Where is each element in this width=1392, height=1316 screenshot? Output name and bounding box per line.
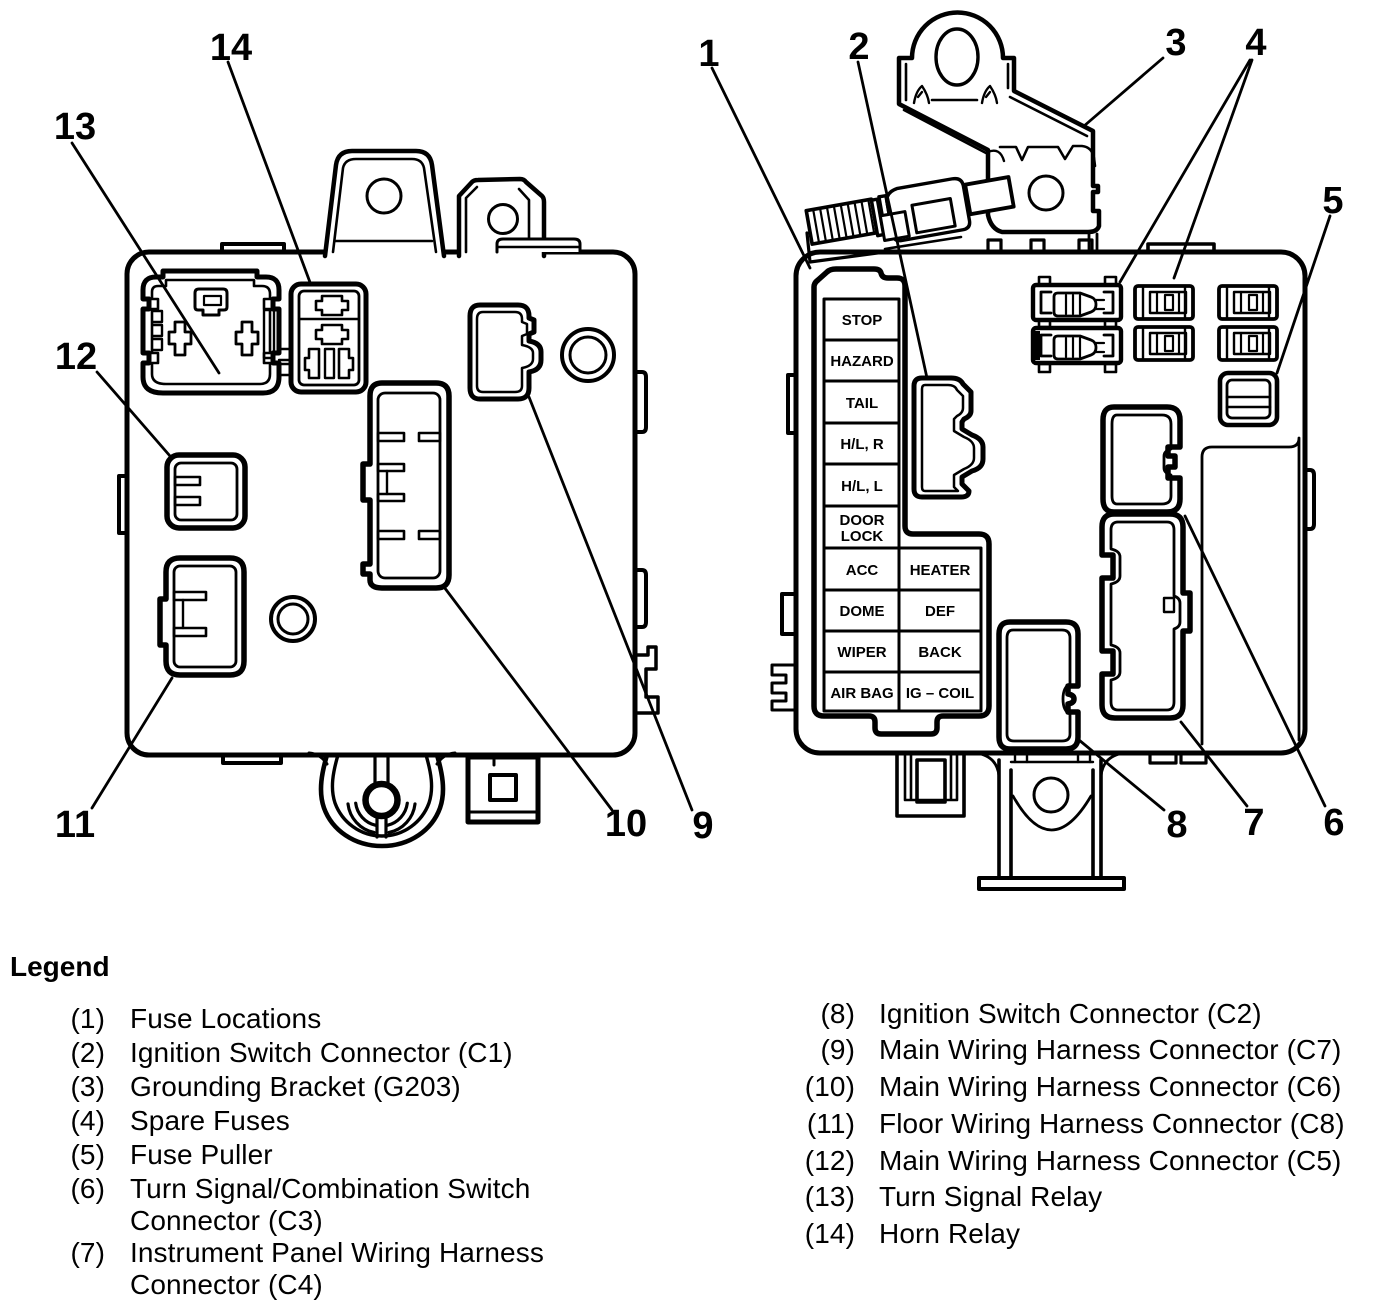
svg-text:(7): (7) xyxy=(70,1237,105,1268)
svg-text:10: 10 xyxy=(605,803,647,845)
svg-text:WIPER: WIPER xyxy=(837,644,886,661)
svg-text:LOCK: LOCK xyxy=(841,528,884,545)
svg-text:13: 13 xyxy=(54,106,96,148)
svg-text:(8): (8) xyxy=(820,998,855,1029)
svg-text:Spare Fuses: Spare Fuses xyxy=(130,1105,290,1136)
svg-text:H/L, R: H/L, R xyxy=(840,436,883,453)
svg-text:DOME: DOME xyxy=(840,603,885,620)
svg-text:DEF: DEF xyxy=(925,603,955,620)
svg-text:Main Wiring Harness Connector: Main Wiring Harness Connector (C7) xyxy=(879,1034,1341,1065)
svg-text:HEATER: HEATER xyxy=(910,562,971,579)
svg-text:(6): (6) xyxy=(70,1173,105,1204)
svg-text:IG – COIL: IG – COIL xyxy=(906,685,974,702)
svg-text:(12): (12) xyxy=(805,1145,855,1176)
svg-text:8: 8 xyxy=(1166,804,1187,846)
svg-text:9: 9 xyxy=(692,805,713,847)
svg-text:Instrument Panel Wiring Harnes: Instrument Panel Wiring Harness xyxy=(130,1237,544,1268)
svg-text:Turn Signal/Combination Switch: Turn Signal/Combination Switch xyxy=(130,1173,530,1204)
svg-text:Connector (C3): Connector (C3) xyxy=(130,1205,323,1236)
svg-text:14: 14 xyxy=(210,27,252,69)
svg-text:Main Wiring Harness Connector: Main Wiring Harness Connector (C6) xyxy=(879,1071,1341,1102)
svg-text:(5): (5) xyxy=(70,1139,105,1170)
svg-text:STOP: STOP xyxy=(842,312,883,329)
svg-text:BACK: BACK xyxy=(918,644,961,661)
svg-text:Grounding Bracket (G203): Grounding Bracket (G203) xyxy=(130,1071,461,1102)
svg-text:Fuse Locations: Fuse Locations xyxy=(130,1003,321,1034)
svg-text:Legend: Legend xyxy=(10,951,110,982)
svg-text:Ignition Switch Connector (C1): Ignition Switch Connector (C1) xyxy=(130,1037,513,1068)
svg-text:1: 1 xyxy=(698,33,719,75)
svg-text:TAIL: TAIL xyxy=(846,395,878,412)
svg-text:Connector (C4): Connector (C4) xyxy=(130,1269,323,1300)
svg-text:AIR BAG: AIR BAG xyxy=(830,685,893,702)
svg-text:6: 6 xyxy=(1323,802,1344,844)
svg-text:(14): (14) xyxy=(805,1218,855,1249)
svg-text:4: 4 xyxy=(1245,22,1266,64)
svg-text:(9): (9) xyxy=(820,1034,855,1065)
svg-text:Horn Relay: Horn Relay xyxy=(879,1218,1020,1249)
svg-text:(1): (1) xyxy=(70,1003,105,1034)
svg-text:Fuse Puller: Fuse Puller xyxy=(130,1139,273,1170)
svg-text:Main Wiring Harness Connector: Main Wiring Harness Connector (C5) xyxy=(879,1145,1341,1176)
svg-text:2: 2 xyxy=(848,26,869,68)
svg-text:(13): (13) xyxy=(805,1181,855,1212)
svg-text:Ignition Switch Connector (C2): Ignition Switch Connector (C2) xyxy=(879,998,1262,1029)
svg-text:(2): (2) xyxy=(70,1037,105,1068)
svg-text:12: 12 xyxy=(55,336,97,378)
svg-text:HAZARD: HAZARD xyxy=(830,353,893,370)
svg-text:3: 3 xyxy=(1165,22,1186,64)
svg-text:(11): (11) xyxy=(807,1108,855,1139)
svg-text:(4): (4) xyxy=(70,1105,105,1136)
svg-text:(10): (10) xyxy=(805,1071,855,1102)
svg-text:H/L, L: H/L, L xyxy=(841,478,883,495)
svg-text:(3): (3) xyxy=(70,1071,105,1102)
svg-text:7: 7 xyxy=(1243,802,1264,844)
svg-text:ACC: ACC xyxy=(846,562,879,579)
svg-text:5: 5 xyxy=(1322,180,1343,222)
svg-text:Floor Wiring Harness Connector: Floor Wiring Harness Connector (C8) xyxy=(879,1108,1345,1139)
svg-text:DOOR: DOOR xyxy=(840,512,885,529)
svg-text:11: 11 xyxy=(55,804,95,846)
svg-text:Turn Signal Relay: Turn Signal Relay xyxy=(879,1181,1102,1212)
